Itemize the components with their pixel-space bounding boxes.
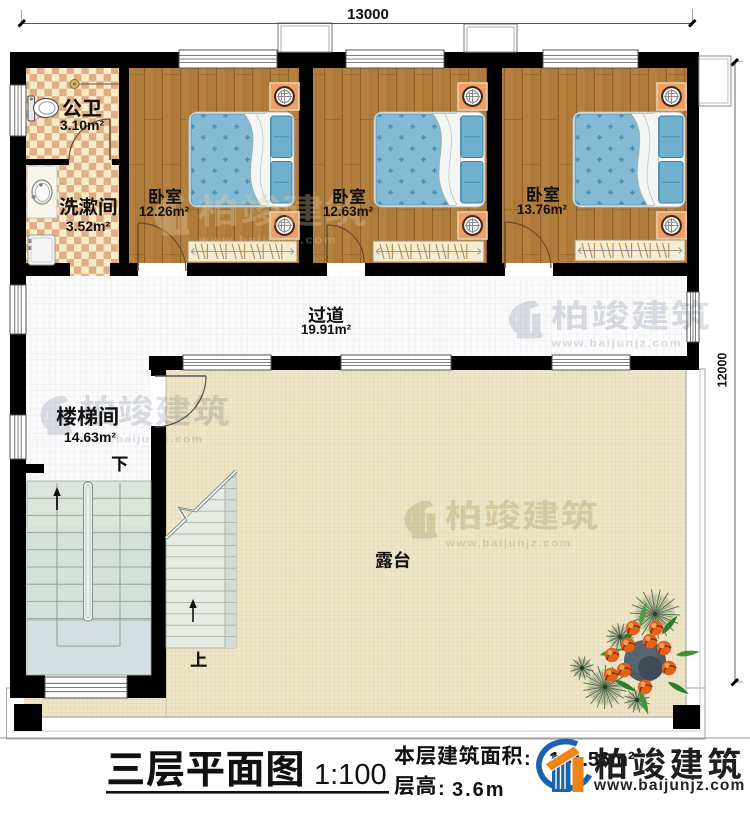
svg-text:12.26m²: 12.26m²	[139, 204, 190, 219]
svg-text:13.76m²: 13.76m²	[517, 202, 568, 217]
svg-text:www.baijunjz.com: www.baijunjz.com	[593, 777, 745, 794]
svg-text:1:100: 1:100	[314, 759, 387, 791]
svg-text:13000: 13000	[347, 6, 389, 23]
svg-text::: :	[438, 778, 445, 800]
svg-text:3.52m²: 3.52m²	[66, 218, 111, 234]
svg-text:12000: 12000	[716, 353, 730, 388]
svg-text:14.63m²: 14.63m²	[64, 429, 116, 445]
svg-text:3.6m: 3.6m	[452, 779, 506, 801]
svg-text:19.91m²: 19.91m²	[301, 322, 352, 337]
svg-text:12.63m²: 12.63m²	[323, 204, 374, 219]
svg-text:3.10m²: 3.10m²	[60, 117, 105, 133]
svg-text::: :	[524, 748, 531, 770]
